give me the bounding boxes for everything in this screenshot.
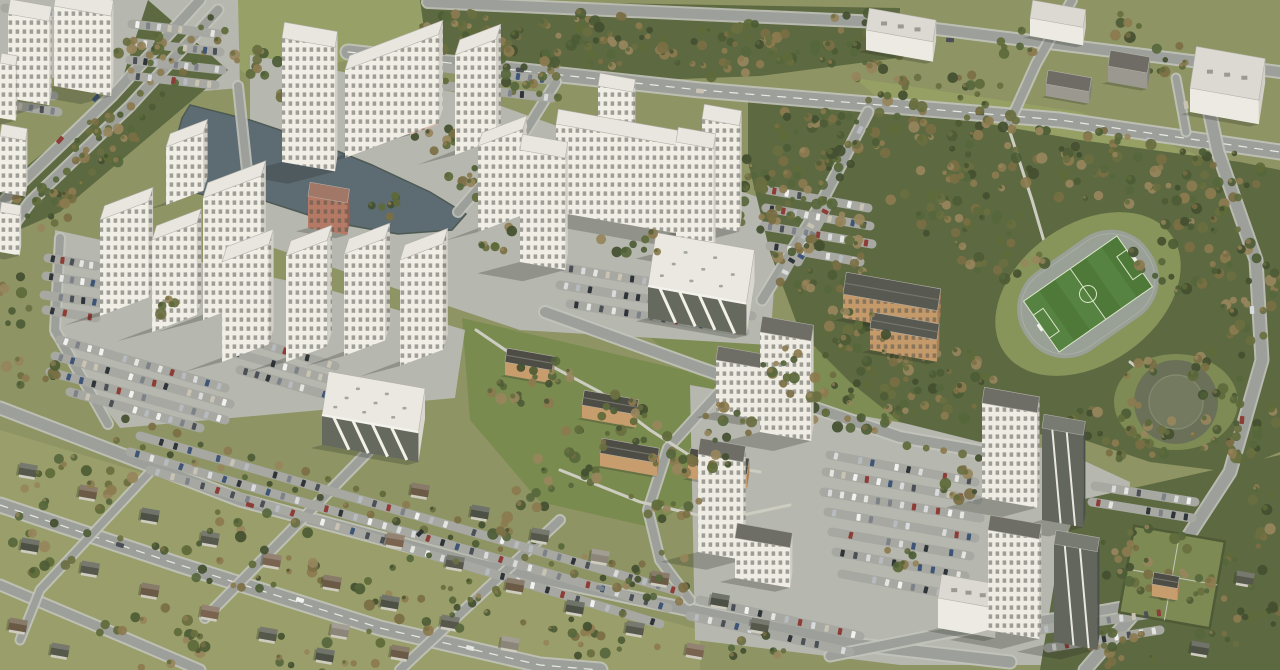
aerial-city-render: Aerial 3D render of residential complex … [0,0,1280,670]
render-canvas: Aerial 3D render of residential complex … [0,0,1280,670]
